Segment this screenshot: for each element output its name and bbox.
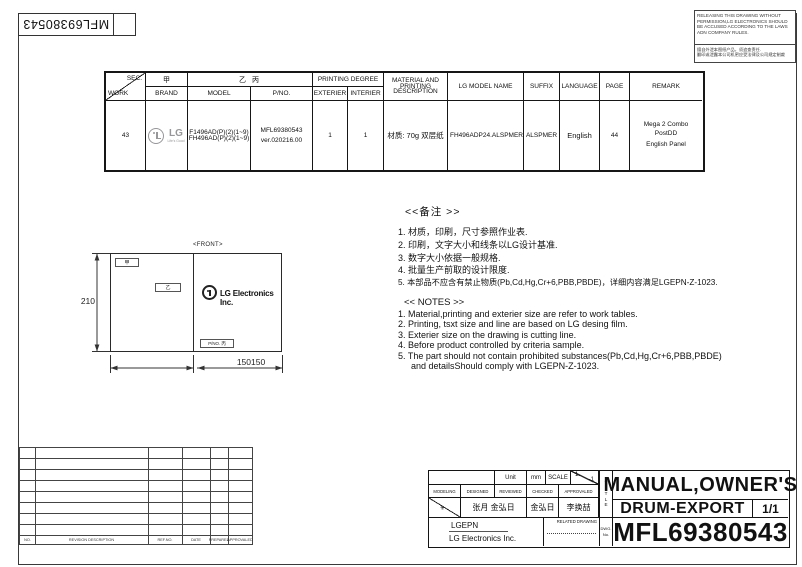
- revision-header-prepared: PREPARED: [210, 536, 228, 544]
- revision-header-date: DATE: [182, 536, 210, 544]
- modeling-signature-cell: ✳: [429, 498, 461, 518]
- header-pno: P/NO.: [251, 87, 313, 101]
- lg-tagline: Life's Good: [167, 139, 184, 143]
- pno-line1: MFL69380543: [261, 126, 303, 136]
- header-sec-work: SEC. WORK: [106, 73, 146, 101]
- header-page: PAGE: [600, 73, 630, 101]
- drawing-number: MFL69380543: [613, 518, 788, 546]
- scale-denominator: 1: [591, 477, 594, 483]
- notes-english-header: << NOTES >>: [404, 297, 758, 308]
- company-cell: LGEPN LG Electronics Inc.: [429, 518, 544, 546]
- drawing-sheet: MFL69380543 RELEASING THIS DRAWING WITHO…: [0, 0, 802, 567]
- header-jia: 甲: [146, 73, 188, 87]
- legal-notice-chinese: 擅自外泄本图纸产品，须追查责任. 翻印或泄露本公司机密应受法律及公司规定制裁: [694, 45, 796, 63]
- part-number-box-divider: [113, 14, 114, 35]
- revision-col-line: [182, 448, 183, 544]
- notes-english-item: 3. Exterier size on the drawing is cutti…: [398, 330, 758, 340]
- cell-exterier: 1: [313, 101, 348, 170]
- revision-header-no: NO.: [20, 536, 35, 544]
- related-drawing-cell: RELATED DRAWING: [544, 518, 599, 546]
- header-printing-degree: PRINTING DEGREE: [313, 73, 384, 87]
- header-sec: SEC.: [127, 75, 142, 82]
- lg-wordmark: LG: [167, 129, 184, 139]
- header-material: MATERIAL AND PRINTING DESCRIPTION: [384, 73, 448, 101]
- titleblock-empty-cell: [429, 471, 495, 485]
- header-model: MODEL: [188, 87, 251, 101]
- notes-english-item: 5. The part should not contain prohibite…: [398, 351, 758, 361]
- notes-english: << NOTES >> 1. Material,printing and ext…: [398, 297, 758, 371]
- dim-height-label: 210: [76, 296, 95, 306]
- staff-header-modeling: MODELING: [429, 485, 461, 498]
- revision-table: NO. REVISION DESCRIPTION REF.NO. DATE PR…: [19, 447, 253, 545]
- unit-value: mm: [527, 471, 546, 485]
- notes-chinese-header: <<备注 >>: [405, 204, 758, 219]
- related-drawing-dotted-line: [547, 533, 597, 534]
- header-interier: INTERIER: [348, 87, 384, 101]
- title-block: Unit mm SCALE 1 1 MODELING DESIGNED REVI…: [428, 470, 790, 548]
- doc-title-line2: DRUM-EXPORT: [613, 500, 752, 518]
- dim-width-label: 150150: [228, 357, 274, 367]
- model-line2: FH496AD(P)(2)(1~9): [189, 136, 250, 141]
- lg-logo: LG Life's Good: [148, 128, 184, 144]
- notes-english-item: 1. Material,printing and exterier size a…: [398, 309, 758, 319]
- header-yibing: 乙 丙: [188, 73, 313, 87]
- staff-header-designed: DESIGNED: [461, 485, 495, 498]
- legal-notice-chinese-line2: 翻印或泄露本公司机密应受法律及公司规定制裁: [697, 52, 793, 57]
- revision-col-line: [35, 448, 36, 544]
- scale-label: SCALE: [546, 471, 571, 485]
- cell-brand: LG Life's Good: [146, 101, 188, 170]
- related-drawing-label: RELATED DRAWING: [557, 519, 599, 524]
- header-exterier: EXTERIER: [313, 87, 348, 101]
- revision-header-approvaled: APPROVALED: [228, 536, 252, 544]
- lg-circle-icon: [148, 128, 164, 144]
- scale-value: 1 1: [571, 471, 599, 485]
- company-code: LGEPN: [449, 521, 508, 532]
- cell-interier: 1: [348, 101, 384, 170]
- notes-chinese: <<备注 >> 1. 材质，印刷，尺寸参照作业表. 2. 印刷，文字大小和线条以…: [398, 204, 758, 290]
- part-number-rotated: MFL69380543: [19, 14, 113, 35]
- unit-label: Unit: [495, 471, 527, 485]
- dwg-no-label: DWG. No.: [599, 518, 613, 546]
- designed-name: 张月 金弘日: [461, 498, 527, 518]
- legal-notice-english: RELEASING THIS DRAWING WITHOUT PERMISSIO…: [694, 10, 796, 45]
- revision-header-description: REVISION DESCRIPTION: [35, 536, 148, 544]
- notes-chinese-item: 3. 数字大小依据一般规格.: [398, 252, 758, 265]
- notes-english-item: 4. Before product controlled by criteria…: [398, 340, 758, 350]
- header-lg-model-name: LG MODEL NAME: [448, 73, 524, 101]
- revision-col-line: [148, 448, 149, 544]
- cell-remark: Mega 2 Combo PostDD English Panel: [630, 101, 702, 170]
- staff-header-checked: CHECKED: [527, 485, 559, 498]
- header-brand: BRAND: [146, 87, 188, 101]
- sheet-number: 1/1: [752, 500, 788, 518]
- cell-pno: MFL69380543 ver.020216.00: [251, 101, 313, 170]
- void-mark-icon: ✳: [440, 505, 445, 512]
- notes-chinese-item: 5. 本部品不应含有禁止物质(Pb,Cd,Hg,Cr+6,PBB,PBDE)，详…: [398, 277, 758, 290]
- scale-numerator: 1: [575, 472, 578, 478]
- cell-page: 44: [600, 101, 630, 170]
- staff-header-approvaled: APPROVALED: [559, 485, 599, 498]
- remark-line2: PostDD: [655, 130, 677, 139]
- doc-title-line1: MANUAL,OWNER'S: [613, 471, 788, 500]
- remark-line3: English Panel: [646, 141, 686, 150]
- revision-col-line: [210, 448, 211, 544]
- header-language: LANGUAGE: [560, 73, 600, 101]
- notes-chinese-item: 1. 材质，印刷，尺寸参照作业表.: [398, 226, 758, 239]
- work-table: SEC. WORK 甲 乙 丙 PRINTING DEGREE MATERIAL…: [104, 71, 705, 172]
- company-name: LG Electronics Inc.: [449, 532, 516, 543]
- remark-line1: Mega 2 Combo: [644, 121, 688, 130]
- cell-model: F1496AD(P)(2)(1~9) FH496AD(P)(2)(1~9): [188, 101, 251, 170]
- part-number-box: MFL69380543: [18, 13, 136, 36]
- revision-header-row: NO. REVISION DESCRIPTION REF.NO. DATE PR…: [20, 535, 252, 544]
- pno-line2: ver.020216.00: [261, 136, 302, 146]
- page-border-bottom: [18, 564, 797, 565]
- cell-suffix: ALSPMER: [524, 101, 560, 170]
- cell-lg-model-name: FH496ADP24.ALSPMER: [448, 101, 524, 170]
- revision-header-refno: REF.NO.: [148, 536, 182, 544]
- revision-col-line: [228, 448, 229, 544]
- cell-language: English: [560, 101, 600, 170]
- header-remark: REMARK: [630, 73, 702, 101]
- notes-english-item: 2. Printing, tsxt size and line are base…: [398, 319, 758, 329]
- cell-work: 43: [106, 101, 146, 170]
- cell-material: 材质: 70g 双层纸: [384, 101, 448, 170]
- notes-chinese-item: 2. 印刷，文字大小和线条以LG设计基准.: [398, 239, 758, 252]
- checked-name: 金弘日: [527, 498, 559, 518]
- notes-chinese-item: 4. 批量生产前取的设计限度.: [398, 264, 758, 277]
- header-work: WORK: [108, 90, 128, 97]
- approved-name: 李换喆: [559, 498, 599, 518]
- staff-header-reviewed: REVIEWED: [495, 485, 527, 498]
- revision-row-lines: [20, 448, 252, 535]
- legal-notice-box: RELEASING THIS DRAWING WITHOUT PERMISSIO…: [694, 10, 796, 63]
- notes-english-item-continuation: and detailsShould comply with LGEPN-Z-10…: [398, 361, 758, 371]
- header-suffix: SUFFIX: [524, 73, 560, 101]
